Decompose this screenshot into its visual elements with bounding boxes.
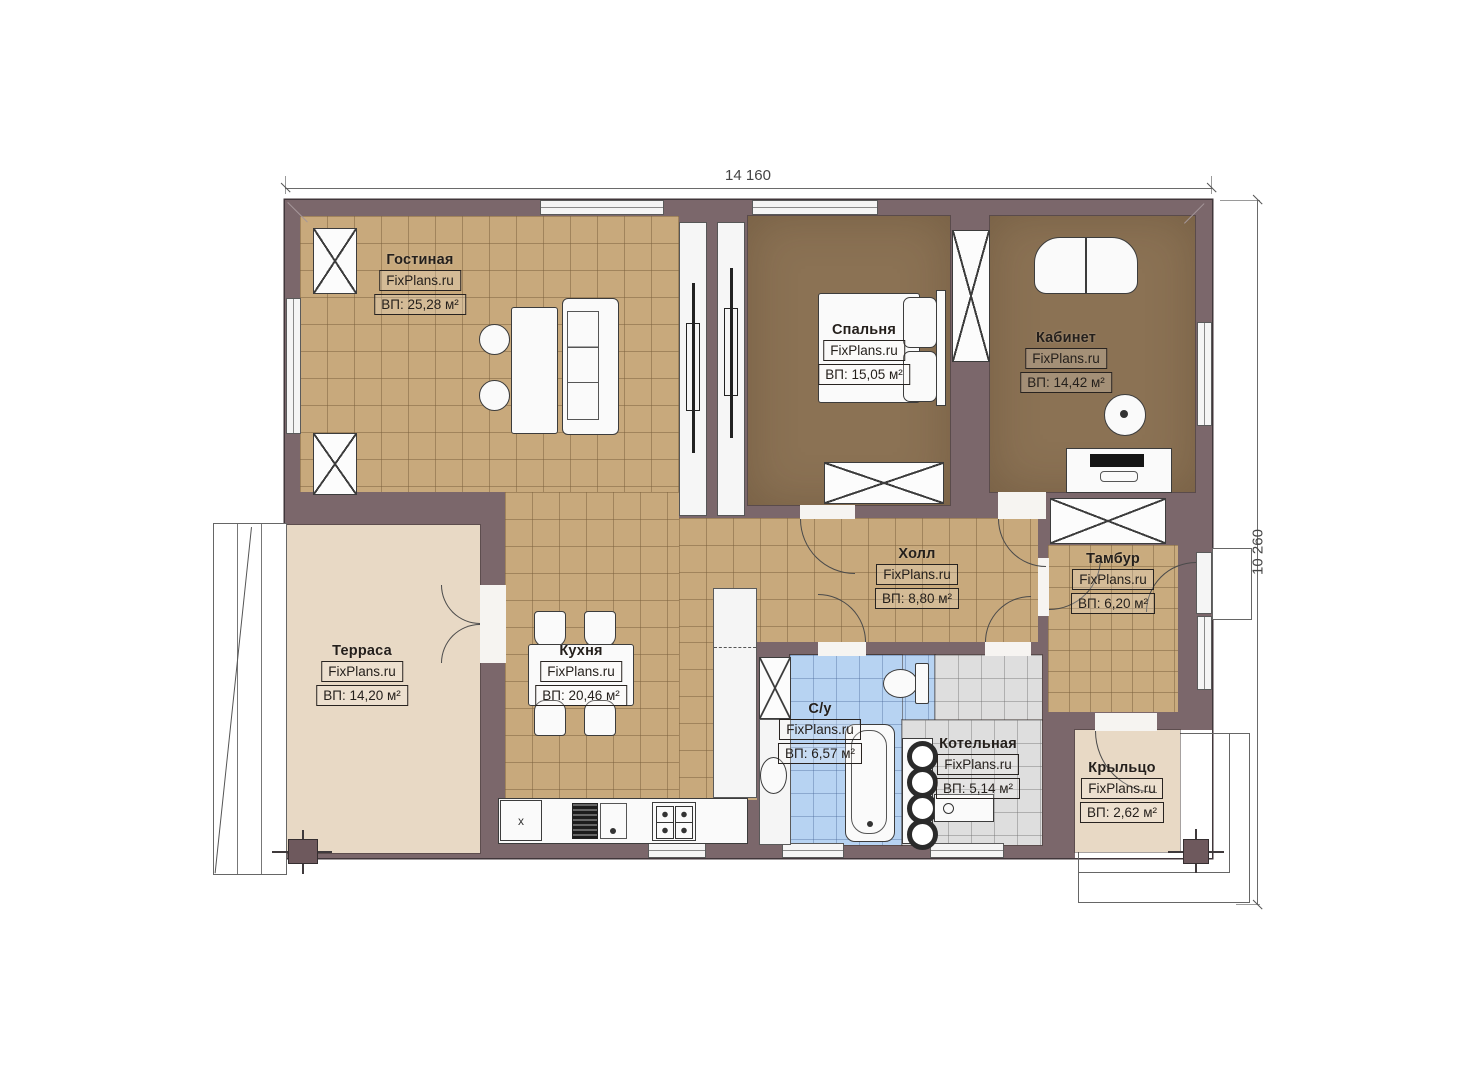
terrace-pillar: [288, 839, 318, 864]
watermark-box: FixPlans.ru: [1081, 778, 1163, 799]
floor-boiler-top: [935, 655, 1042, 720]
window-bottom-boiler: [930, 843, 1004, 858]
door-opening-porch: [1095, 713, 1157, 731]
keyboard: [1100, 471, 1138, 482]
room-name: Крыльцо: [1080, 760, 1164, 776]
window-bottom-bathroom: [782, 843, 844, 858]
dim-extension: [1220, 200, 1260, 201]
dimension-width-label: 14 160: [725, 167, 771, 184]
kitchen-tall-cabinet: [713, 588, 757, 798]
window-top-bedroom: [752, 200, 878, 215]
room-label-office: Кабинет FixPlans.ru ВП: 14,42 м²: [1020, 330, 1112, 393]
monitor: [1090, 454, 1144, 467]
area-box: ВП: 6,20 м²: [1071, 593, 1155, 614]
room-label-porch: Крыльцо FixPlans.ru ВП: 2,62 м²: [1080, 760, 1164, 823]
dishwasher: [572, 803, 598, 839]
toilet: [883, 669, 918, 698]
room-label-bathroom: С/у FixPlans.ru ВП: 6,57 м²: [778, 701, 862, 764]
room-name: Кабинет: [1020, 330, 1112, 346]
area-box: ВП: 14,42 м²: [1020, 372, 1112, 393]
watermark-box: FixPlans.ru: [540, 661, 622, 682]
watermark-box: FixPlans.ru: [876, 564, 958, 585]
room-label-kitchen: Кухня FixPlans.ru ВП: 20,46 м²: [535, 643, 627, 706]
area-box: ВП: 5,14 м²: [936, 778, 1020, 799]
room-name: Гостиная: [374, 252, 466, 268]
watermark-box: FixPlans.ru: [1025, 348, 1107, 369]
terrace-step-line: [237, 524, 238, 874]
wardrobe-vestibule: [1050, 498, 1166, 544]
wardrobe-bedroom-office: [952, 230, 990, 362]
sofa: [562, 298, 619, 435]
watermark-box: FixPlans.ru: [379, 270, 461, 291]
area-box: ВП: 20,46 м²: [535, 685, 627, 706]
room-name: Терраса: [316, 643, 408, 659]
dim-extension: [1211, 176, 1212, 194]
kitchen-sink: [600, 803, 627, 839]
watermark-box: FixPlans.ru: [321, 661, 403, 682]
entry-door-leaf: [1196, 552, 1212, 614]
wardrobe-bedroom: [824, 462, 944, 504]
door-opening-terrace: [480, 585, 506, 663]
room-name: Холл: [875, 546, 959, 562]
dimension-line-top: [285, 188, 1212, 189]
window-left-living: [286, 298, 301, 434]
door-opening-bedroom: [800, 505, 855, 519]
plant-pot: [1104, 394, 1146, 436]
room-label-living: Гостиная FixPlans.ru ВП: 25,28 м²: [374, 252, 466, 315]
room-label-hall: Холл FixPlans.ru ВП: 8,80 м²: [875, 546, 959, 609]
entry-outside-step: [1212, 548, 1252, 620]
area-box: ВП: 14,20 м²: [316, 685, 408, 706]
window-bottom-kitchen: [648, 843, 706, 858]
window-right-office: [1197, 322, 1212, 426]
dim-extension: [285, 176, 286, 194]
room-label-boiler: Котельная FixPlans.ru ВП: 5,14 м²: [936, 736, 1020, 799]
porch-pillar: [1183, 839, 1209, 864]
stove-burner: [656, 806, 674, 823]
area-box: ВП: 6,57 м²: [778, 743, 862, 764]
office-sofa: [1034, 237, 1138, 294]
sliding-panel: [679, 222, 707, 516]
toilet-tank: [915, 663, 929, 704]
door-opening-boiler: [985, 642, 1031, 656]
boiler-unit: [907, 819, 938, 850]
window-right-vestibule: [1197, 616, 1212, 690]
faucet: [610, 828, 616, 834]
dimension-height-label: 10 260: [1250, 529, 1267, 575]
boiler-stack: [902, 738, 933, 844]
panel-handle: [724, 308, 738, 396]
wardrobe-living-bottom: [313, 433, 357, 495]
refrigerator: x: [500, 800, 542, 841]
room-name: С/у: [778, 701, 862, 717]
watermark-box: FixPlans.ru: [823, 340, 905, 361]
pouf: [479, 380, 510, 411]
pouf: [479, 324, 510, 355]
room-label-bedroom: Спальня FixPlans.ru ВП: 15,05 м²: [818, 322, 910, 385]
stove-burner: [675, 806, 693, 823]
room-name: Котельная: [936, 736, 1020, 752]
room-label-terrace: Терраса FixPlans.ru ВП: 14,20 м²: [316, 643, 408, 706]
panel-handle: [686, 323, 700, 411]
refrigerator-mark: x: [518, 814, 524, 828]
dining-chair: [584, 611, 616, 647]
sliding-panel: [717, 222, 745, 516]
area-box: ВП: 15,05 м²: [818, 364, 910, 385]
stove-burner: [675, 822, 693, 839]
area-box: ВП: 8,80 м²: [875, 588, 959, 609]
stove: [652, 802, 696, 841]
area-box: ВП: 2,62 м²: [1080, 802, 1164, 823]
watermark-box: FixPlans.ru: [1072, 569, 1154, 590]
dining-chair: [534, 611, 566, 647]
plant-center: [1120, 410, 1128, 418]
door-opening-bathroom: [818, 642, 866, 656]
coffee-table: [511, 307, 558, 434]
door-opening-office: [998, 492, 1046, 519]
wardrobe-living-top: [313, 228, 357, 294]
terrace-steps: [213, 523, 287, 875]
bathtub-drain: [867, 821, 873, 827]
watermark-box: FixPlans.ru: [779, 719, 861, 740]
area-box: ВП: 25,28 м²: [374, 294, 466, 315]
terrace-step-line: [261, 524, 262, 874]
room-label-vestibule: Тамбур FixPlans.ru ВП: 6,20 м²: [1071, 551, 1155, 614]
window-top-living: [540, 200, 664, 215]
cabinet-divider: [714, 647, 756, 648]
boiler-cabinet-knob: [943, 803, 954, 814]
room-name: Спальня: [818, 322, 910, 338]
room-name: Тамбур: [1071, 551, 1155, 567]
watermark-box: FixPlans.ru: [937, 754, 1019, 775]
stove-burner: [656, 822, 674, 839]
room-name: Кухня: [535, 643, 627, 659]
bed-headboard: [936, 290, 946, 406]
sofa-seat: [567, 311, 599, 420]
floor-plan: x: [0, 0, 1473, 1080]
